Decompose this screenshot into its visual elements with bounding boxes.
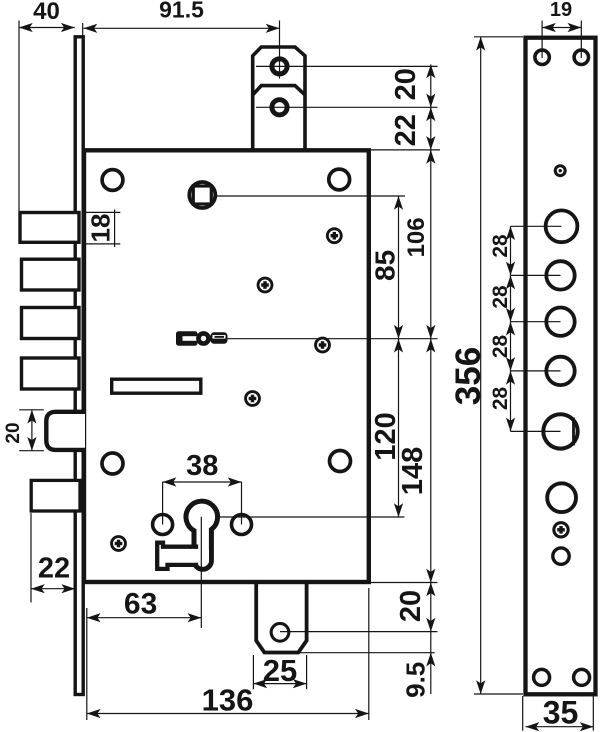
svg-text:63: 63 <box>124 588 157 621</box>
svg-text:85: 85 <box>370 250 401 281</box>
svg-text:38: 38 <box>186 450 218 482</box>
svg-text:20: 20 <box>3 422 24 443</box>
svg-text:40: 40 <box>33 0 60 25</box>
svg-text:9.5: 9.5 <box>401 662 431 698</box>
svg-text:19: 19 <box>550 0 572 21</box>
svg-text:28: 28 <box>489 234 512 258</box>
svg-text:106: 106 <box>403 217 430 257</box>
svg-text:91.5: 91.5 <box>159 0 204 23</box>
svg-text:35: 35 <box>543 695 579 731</box>
svg-text:28: 28 <box>489 335 512 359</box>
svg-text:22: 22 <box>38 553 70 585</box>
svg-text:25: 25 <box>263 653 297 688</box>
svg-text:18: 18 <box>85 214 115 243</box>
svg-text:20: 20 <box>395 590 427 622</box>
svg-text:148: 148 <box>397 447 429 495</box>
svg-text:136: 136 <box>202 683 254 718</box>
svg-text:20: 20 <box>390 68 422 100</box>
svg-text:22: 22 <box>390 114 422 146</box>
svg-text:28: 28 <box>489 285 512 309</box>
svg-text:356: 356 <box>449 347 488 405</box>
svg-text:28: 28 <box>489 387 512 411</box>
